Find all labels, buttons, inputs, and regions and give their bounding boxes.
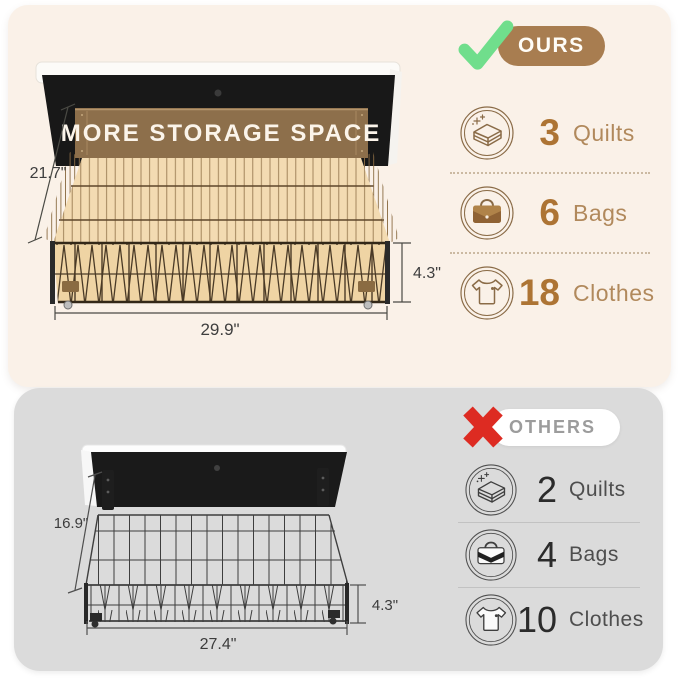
item-row-quilts: 3 Quilts	[454, 94, 668, 172]
item-count: 18	[514, 272, 560, 314]
quilt-icon	[460, 106, 514, 160]
item-row-clothes: 10 Clothes	[460, 588, 674, 652]
ours-badge: OURS	[454, 20, 668, 72]
item-count: 6	[514, 192, 560, 234]
storage-drawer: MORE STORAGE SPACE	[44, 108, 399, 309]
item-label: Clothes	[573, 280, 654, 307]
wire-basket-drawer	[84, 515, 349, 628]
caster-wheel	[330, 618, 337, 625]
width-dimension-label: 29.9"	[200, 320, 239, 339]
ours-panel: MORE STORAGE SPACE	[8, 5, 671, 387]
item-label: Bags	[569, 543, 619, 567]
bed-platform	[36, 62, 402, 166]
item-label: Quilts	[573, 120, 635, 147]
bed-platform	[81, 445, 347, 510]
item-label: Bags	[573, 200, 627, 227]
x-icon	[460, 404, 506, 450]
caster-wheel	[364, 301, 372, 309]
others-badge: OTHERS	[460, 404, 674, 450]
item-row-quilts: 2 Quilts	[460, 458, 674, 522]
item-row-clothes: 18 Clothes	[454, 254, 668, 332]
depth-dimension-label: 21.7"	[30, 165, 67, 182]
item-label: Clothes	[569, 608, 644, 632]
caster-wheel	[92, 621, 99, 628]
height-dimension-label: 4.3"	[413, 265, 441, 282]
item-count: 4	[517, 534, 557, 576]
bag-icon	[465, 529, 517, 581]
others-badge-pill: OTHERS	[491, 409, 620, 446]
others-panel: 16.9" 4.3" 27.4" OTHERS	[14, 388, 663, 671]
dimension-lines	[68, 472, 366, 635]
item-label: Quilts	[569, 478, 626, 502]
item-count: 10	[517, 599, 557, 641]
ours-comparison-column: OURS 3 Quilts	[454, 20, 668, 332]
quilt-icon	[465, 464, 517, 516]
bag-icon	[460, 186, 514, 240]
clothes-icon	[465, 594, 517, 646]
depth-dimension-label: 16.9"	[54, 515, 89, 532]
caster-wheel	[64, 301, 72, 309]
item-count: 2	[517, 469, 557, 511]
clothes-icon	[460, 266, 514, 320]
item-count: 3	[514, 112, 560, 154]
others-comparison-column: OTHERS 2 Quilts	[460, 404, 674, 652]
item-row-bags: 6 Bags	[454, 174, 668, 252]
width-dimension-label: 27.4"	[200, 636, 237, 653]
height-dimension-label: 4.3"	[372, 597, 398, 614]
banner-text: MORE STORAGE SPACE	[61, 120, 381, 147]
dimension-lines	[28, 104, 411, 320]
check-icon	[454, 20, 516, 72]
item-row-bags: 4 Bags	[460, 523, 674, 587]
